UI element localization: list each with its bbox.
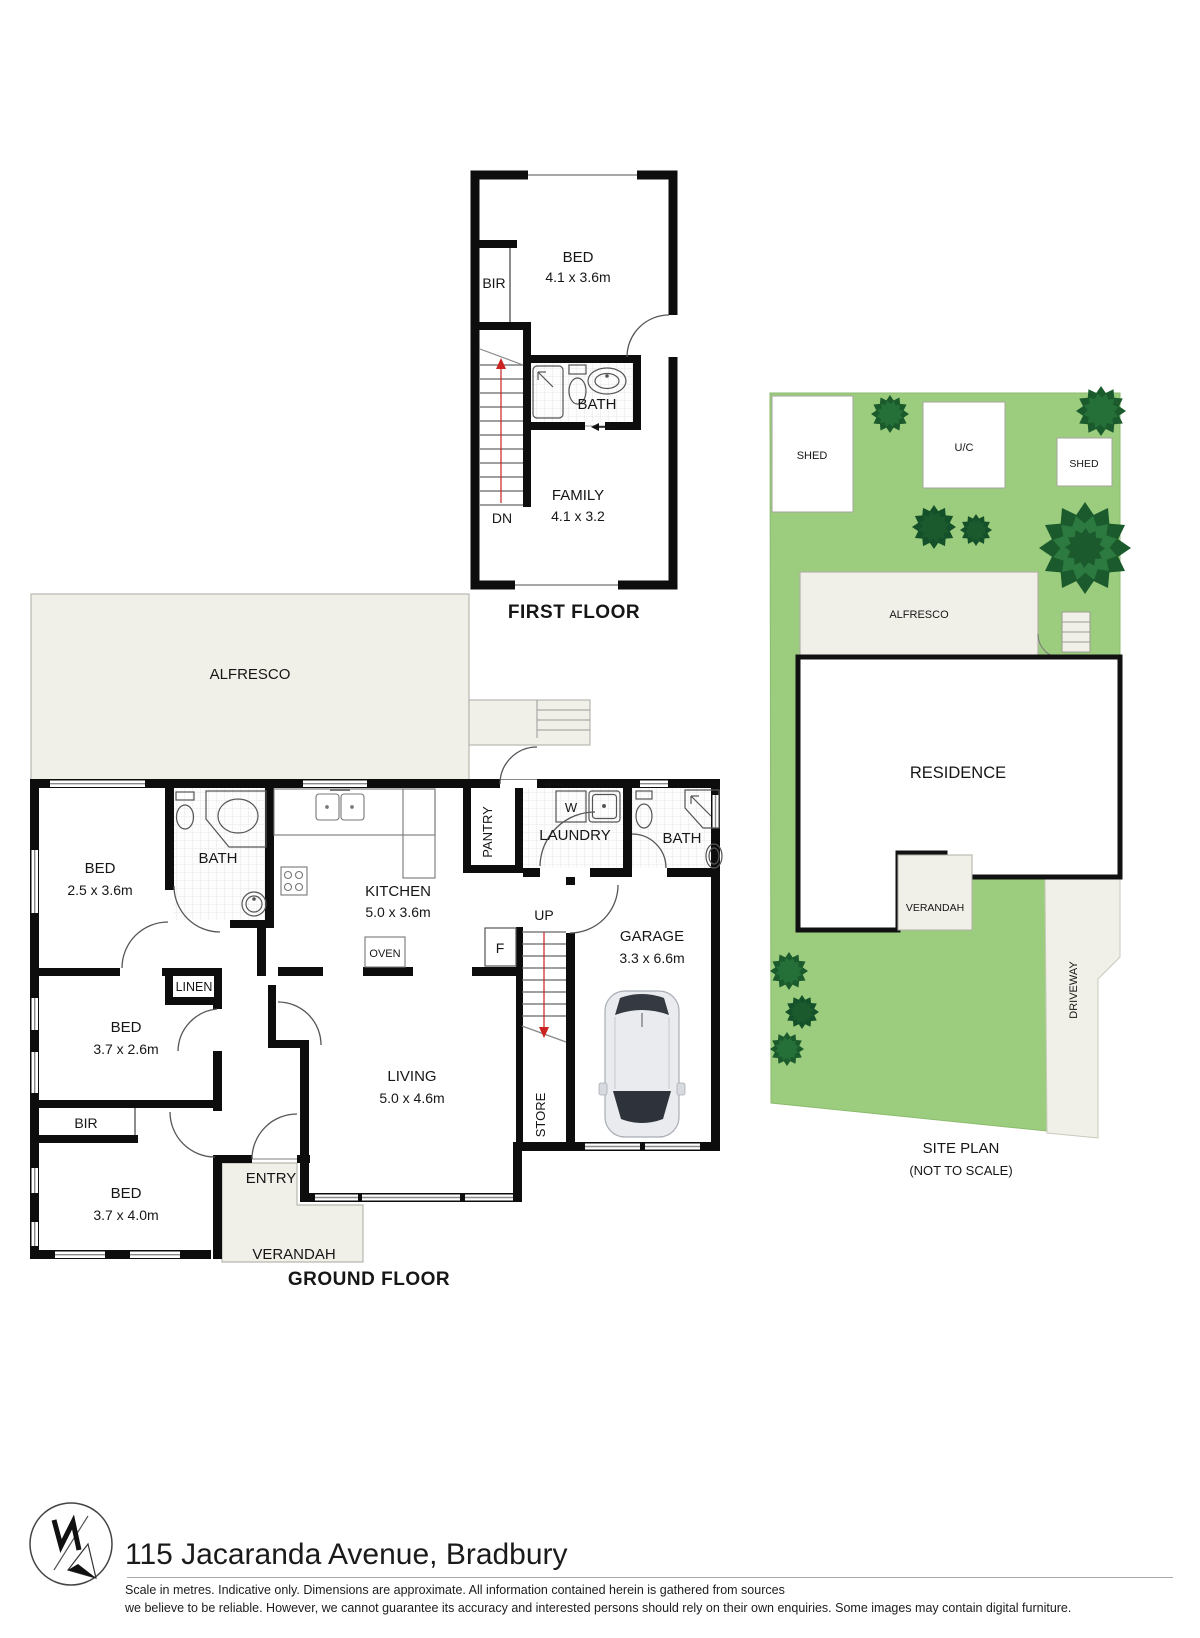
- ff-bed-dims: 4.1 x 3.6m: [545, 269, 610, 285]
- gf-bed2-dims: 3.7 x 2.6m: [93, 1041, 158, 1057]
- gf-bed2-label: BED: [111, 1019, 142, 1036]
- gf-bed3-label: BED: [111, 1185, 142, 1202]
- gf-pantry-label: PANTRY: [480, 806, 495, 858]
- gf-up-label: UP: [534, 907, 553, 923]
- gf-garage-label: GARAGE: [620, 928, 684, 945]
- compass-north-icon: [26, 1494, 116, 1596]
- gf-bed1-dims: 2.5 x 3.6m: [67, 882, 132, 898]
- gf-bed3-dims: 3.7 x 4.0m: [93, 1207, 158, 1223]
- gf-fridge-label: F: [496, 940, 505, 956]
- agency-logo: [26, 1494, 116, 1596]
- ff-family-dims: 4.1 x 3.2: [551, 508, 605, 524]
- ff-dn-label: DN: [492, 510, 512, 526]
- gf-store-label: STORE: [533, 1092, 548, 1137]
- site-residence-label: RESIDENCE: [910, 764, 1006, 782]
- ff-bir-label: BIR: [482, 275, 505, 291]
- site-verandah: [898, 855, 972, 930]
- site-plan: DRIVEWAY ALFRESCO RESIDENCE VERANDAH SHE…: [770, 386, 1131, 1178]
- gf-bath2-label: BATH: [663, 830, 702, 847]
- gf-verandah-label: VERANDAH: [252, 1246, 335, 1263]
- ff-bed-label: BED: [563, 249, 594, 266]
- disclaimer-line-2: we believe to be reliable. However, we c…: [125, 1601, 1071, 1615]
- gf-living-label: LIVING: [387, 1068, 436, 1085]
- first-floor-plan: BED 4.1 x 3.6m BIR BATH FAMILY 4.1 x 3.2…: [471, 171, 678, 624]
- gf-bath1-label: BATH: [199, 850, 238, 867]
- gf-alfresco: ALFRESCO: [31, 594, 590, 785]
- gf-living-dims: 5.0 x 4.6m: [379, 1090, 444, 1106]
- car-icon: [599, 991, 685, 1137]
- gf-bed1-label: BED: [85, 860, 116, 877]
- gf-washer-label: W: [565, 800, 578, 815]
- site-verandah-label: VERANDAH: [906, 902, 964, 914]
- gf-kitchen-dims: 5.0 x 3.6m: [365, 904, 430, 920]
- gf-entry-label: ENTRY: [246, 1170, 297, 1187]
- site-shed-left-label: SHED: [797, 450, 828, 462]
- site-shed-right-label: SHED: [1069, 458, 1099, 470]
- gf-kitchen-label: KITCHEN: [365, 883, 431, 900]
- ff-family-label: FAMILY: [552, 487, 604, 504]
- site-driveway: [1045, 877, 1120, 1138]
- gf-linen-label: LINEN: [176, 980, 213, 994]
- site-alfresco-label: ALFRESCO: [889, 609, 949, 621]
- site-uc-label: U/C: [955, 442, 974, 454]
- gf-laundry-label: LAUNDRY: [539, 827, 610, 844]
- gf-bir-label: BIR: [74, 1115, 97, 1131]
- site-driveway-label: DRIVEWAY: [1068, 961, 1080, 1019]
- first-floor-title: FIRST FLOOR: [508, 602, 640, 623]
- gf-garage-dims: 3.3 x 6.6m: [619, 950, 684, 966]
- property-address: 115 Jacaranda Avenue, Bradbury: [125, 1538, 568, 1572]
- footer-divider: [127, 1577, 1173, 1578]
- floorplan-image: BED 4.1 x 3.6m BIR BATH FAMILY 4.1 x 3.2…: [0, 0, 1200, 1638]
- ground-floor-plan: ALFRESCO VERANDAH: [30, 594, 722, 1290]
- ff-bath-label: BATH: [578, 396, 617, 413]
- gf-alfresco-label: ALFRESCO: [210, 666, 291, 683]
- disclaimer-line-1: Scale in metres. Indicative only. Dimens…: [125, 1583, 785, 1597]
- gf-oven-label: OVEN: [369, 948, 400, 960]
- bath-tiles: [531, 363, 633, 422]
- site-plan-title: SITE PLAN: [923, 1140, 1000, 1157]
- ground-floor-title: GROUND FLOOR: [288, 1269, 450, 1290]
- site-plan-subtitle: (NOT TO SCALE): [909, 1163, 1012, 1178]
